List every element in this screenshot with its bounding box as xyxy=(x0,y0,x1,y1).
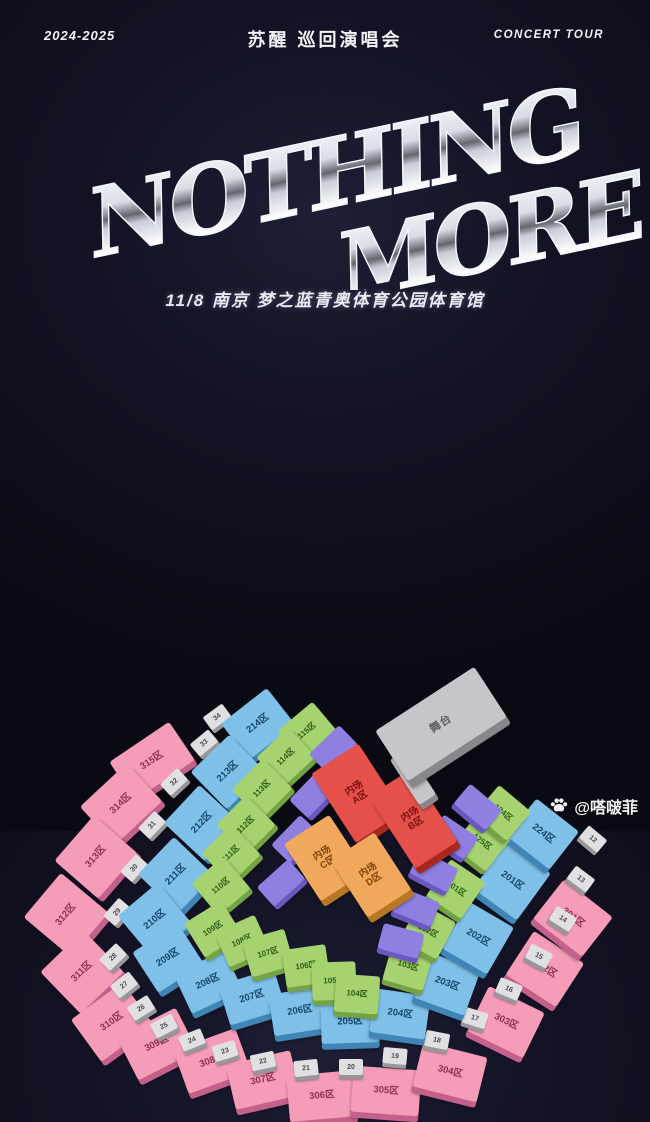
header-concert-tour: CONCERT TOUR xyxy=(494,29,604,41)
header: 2024-2025 苏醒 巡回演唱会 CONCERT TOUR xyxy=(0,26,650,50)
poster: { "header": { "left": "2024-2025", "cent… xyxy=(0,0,650,831)
paw-icon xyxy=(549,796,569,816)
show-date-venue: 11/8 南京 梦之蓝青奥体育公园体育馆 xyxy=(0,286,650,311)
tour-logo: NOTHING MORE xyxy=(0,50,650,290)
seat-map: 315区314区313区312区311区310区309区308区307区306区… xyxy=(0,330,650,810)
watermark: @嗒啵菲 xyxy=(549,794,638,818)
section-304: 304区 xyxy=(412,1042,487,1103)
section-104: 104区 xyxy=(334,974,381,1015)
gate-21: 21 xyxy=(293,1059,319,1077)
gate-20: 20 xyxy=(339,1059,363,1075)
watermark-handle: @嗒啵菲 xyxy=(574,794,638,818)
gate-12: 12 xyxy=(579,825,608,853)
gate-19: 19 xyxy=(382,1047,407,1065)
section-306: 306区 xyxy=(286,1070,358,1122)
